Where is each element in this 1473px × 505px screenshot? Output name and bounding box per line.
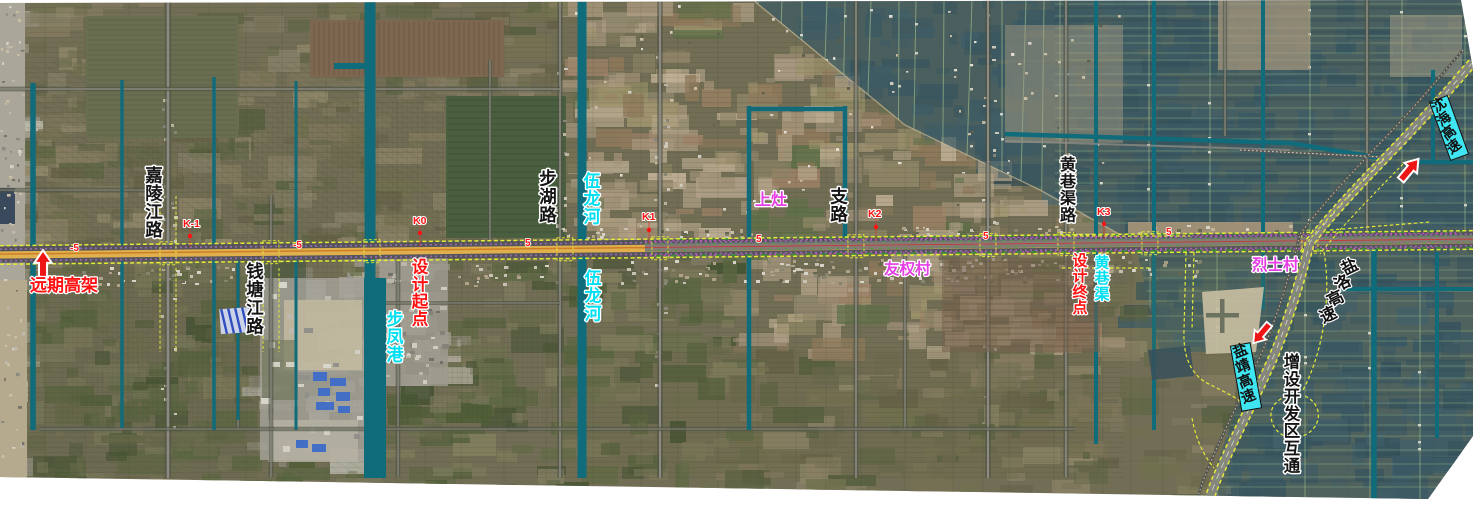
svg-text:K1: K1: [642, 211, 656, 223]
svg-text:上灶: 上灶: [755, 190, 787, 209]
svg-text:K2: K2: [868, 208, 882, 220]
svg-text:5: 5: [525, 238, 531, 249]
svg-text:黄巷渠路: 黄巷渠路: [1059, 155, 1077, 224]
svg-text:-5: -5: [70, 243, 79, 254]
svg-text:5: 5: [983, 231, 989, 242]
svg-text:K3: K3: [1097, 206, 1111, 218]
svg-text:伍龙河: 伍龙河: [584, 268, 602, 324]
svg-text:设计终点: 设计终点: [1072, 252, 1088, 316]
svg-text:黄巷渠: 黄巷渠: [1093, 253, 1110, 303]
svg-text:5: 5: [1166, 227, 1172, 238]
svg-text:钱塘江路: 钱塘江路: [246, 261, 264, 336]
svg-text:烈士村: 烈士村: [1252, 255, 1299, 274]
svg-text:设计起点: 设计起点: [411, 258, 429, 329]
svg-text:K-1: K-1: [183, 218, 200, 230]
svg-text:步凤港: 步凤港: [387, 309, 405, 365]
svg-text:远期高架: 远期高架: [30, 275, 98, 295]
svg-text:-5: -5: [293, 240, 302, 251]
svg-text:支路: 支路: [829, 186, 848, 224]
svg-text:嘉陵江路: 嘉陵江路: [144, 165, 163, 240]
svg-text:友权村: 友权村: [884, 259, 931, 278]
svg-text:K0: K0: [413, 215, 427, 227]
svg-text:5: 5: [756, 234, 762, 245]
svg-text:伍龙河: 伍龙河: [583, 171, 601, 227]
svg-text:步湖路: 步湖路: [539, 168, 557, 225]
svg-text:增设开发区互通: 增设开发区互通: [1283, 352, 1301, 476]
